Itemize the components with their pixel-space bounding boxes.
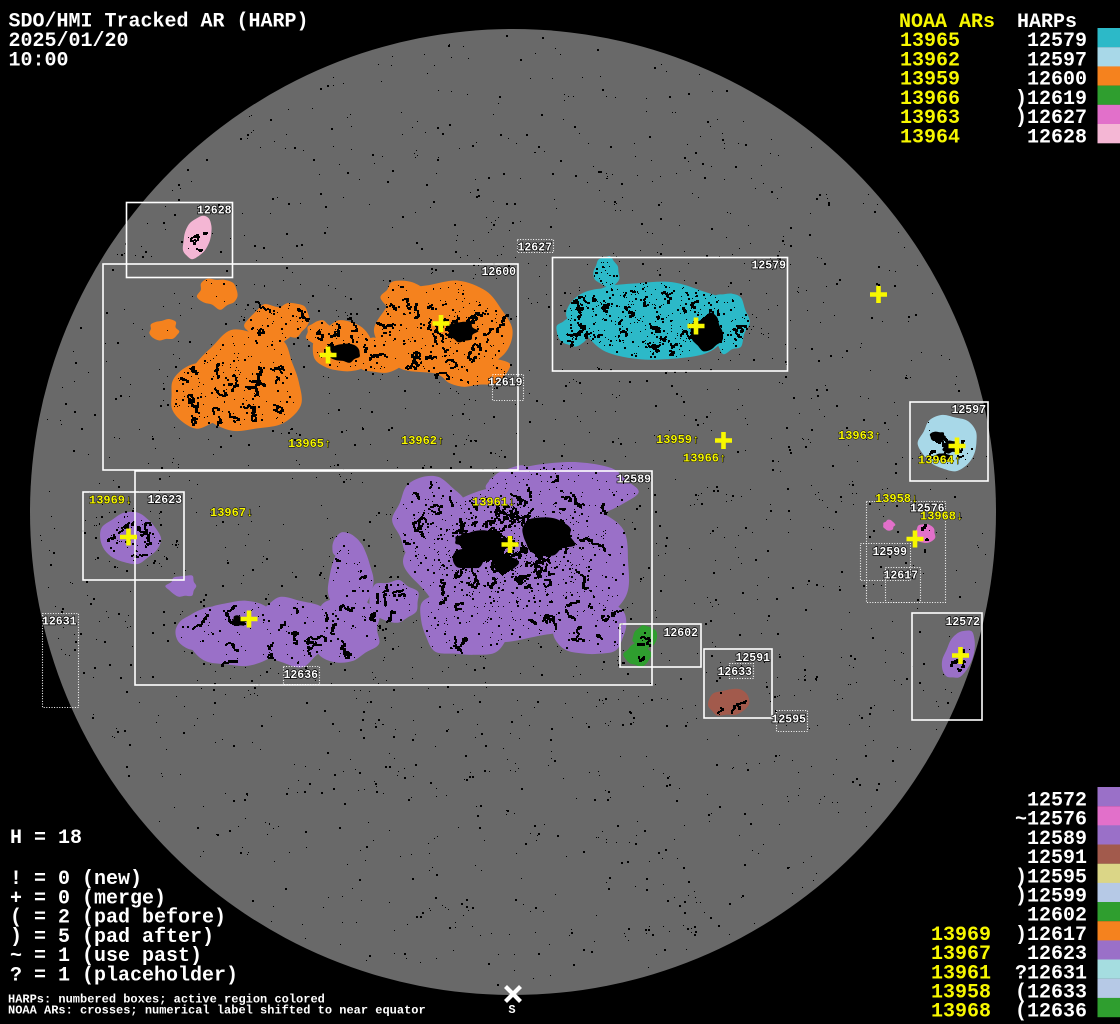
svg-text:13967↓: 13967↓ [210,506,253,520]
svg-text:12602: 12602 [663,627,698,640]
svg-text:12631: 12631 [42,616,77,629]
svg-text:13968↓: 13968↓ [920,510,963,524]
svg-text:S: S [508,1003,515,1017]
svg-text:13962↑: 13962↑ [401,434,444,448]
svg-text:12623: 12623 [147,494,182,507]
svg-text:13964↑: 13964↑ [918,454,961,468]
svg-text:12633: 12633 [717,666,752,679]
svg-text:13958↓: 13958↓ [875,492,918,506]
svg-text:12591: 12591 [735,652,770,665]
svg-text:12579: 12579 [751,260,786,273]
svg-text:13965↑: 13965↑ [288,437,331,451]
svg-text:13959↑: 13959↑ [656,433,699,447]
svg-text:12617: 12617 [883,570,918,583]
svg-text:13969↓: 13969↓ [89,494,132,508]
svg-text:13964: 13964 [900,126,960,149]
svg-text:12597: 12597 [951,404,986,417]
svg-text:12628: 12628 [1027,126,1087,149]
svg-text:12572: 12572 [945,616,980,629]
svg-text:13961↓: 13961↓ [472,496,515,510]
svg-text:13963↑: 13963↑ [838,429,881,443]
svg-text:10:00: 10:00 [9,49,69,72]
svg-text:12599: 12599 [872,546,907,559]
svg-text:13968: 13968 [931,1001,991,1024]
svg-text:(12636: (12636 [1015,1001,1087,1024]
svg-text:13966↑: 13966↑ [683,452,726,466]
svg-text:? = 1 (placeholder): ? = 1 (placeholder) [10,965,238,988]
svg-text:12628: 12628 [197,205,232,218]
svg-text:12595: 12595 [771,714,806,727]
svg-text:12636: 12636 [283,669,318,682]
svg-text:12627: 12627 [517,242,552,255]
svg-text:H = 18: H = 18 [10,827,82,850]
svg-text:12600: 12600 [481,266,516,279]
svg-text:NOAA ARs: crosses; numerical l: NOAA ARs: crosses; numerical label shift… [8,1004,426,1018]
svg-text:12589: 12589 [616,474,651,487]
svg-text:12619: 12619 [488,377,523,390]
